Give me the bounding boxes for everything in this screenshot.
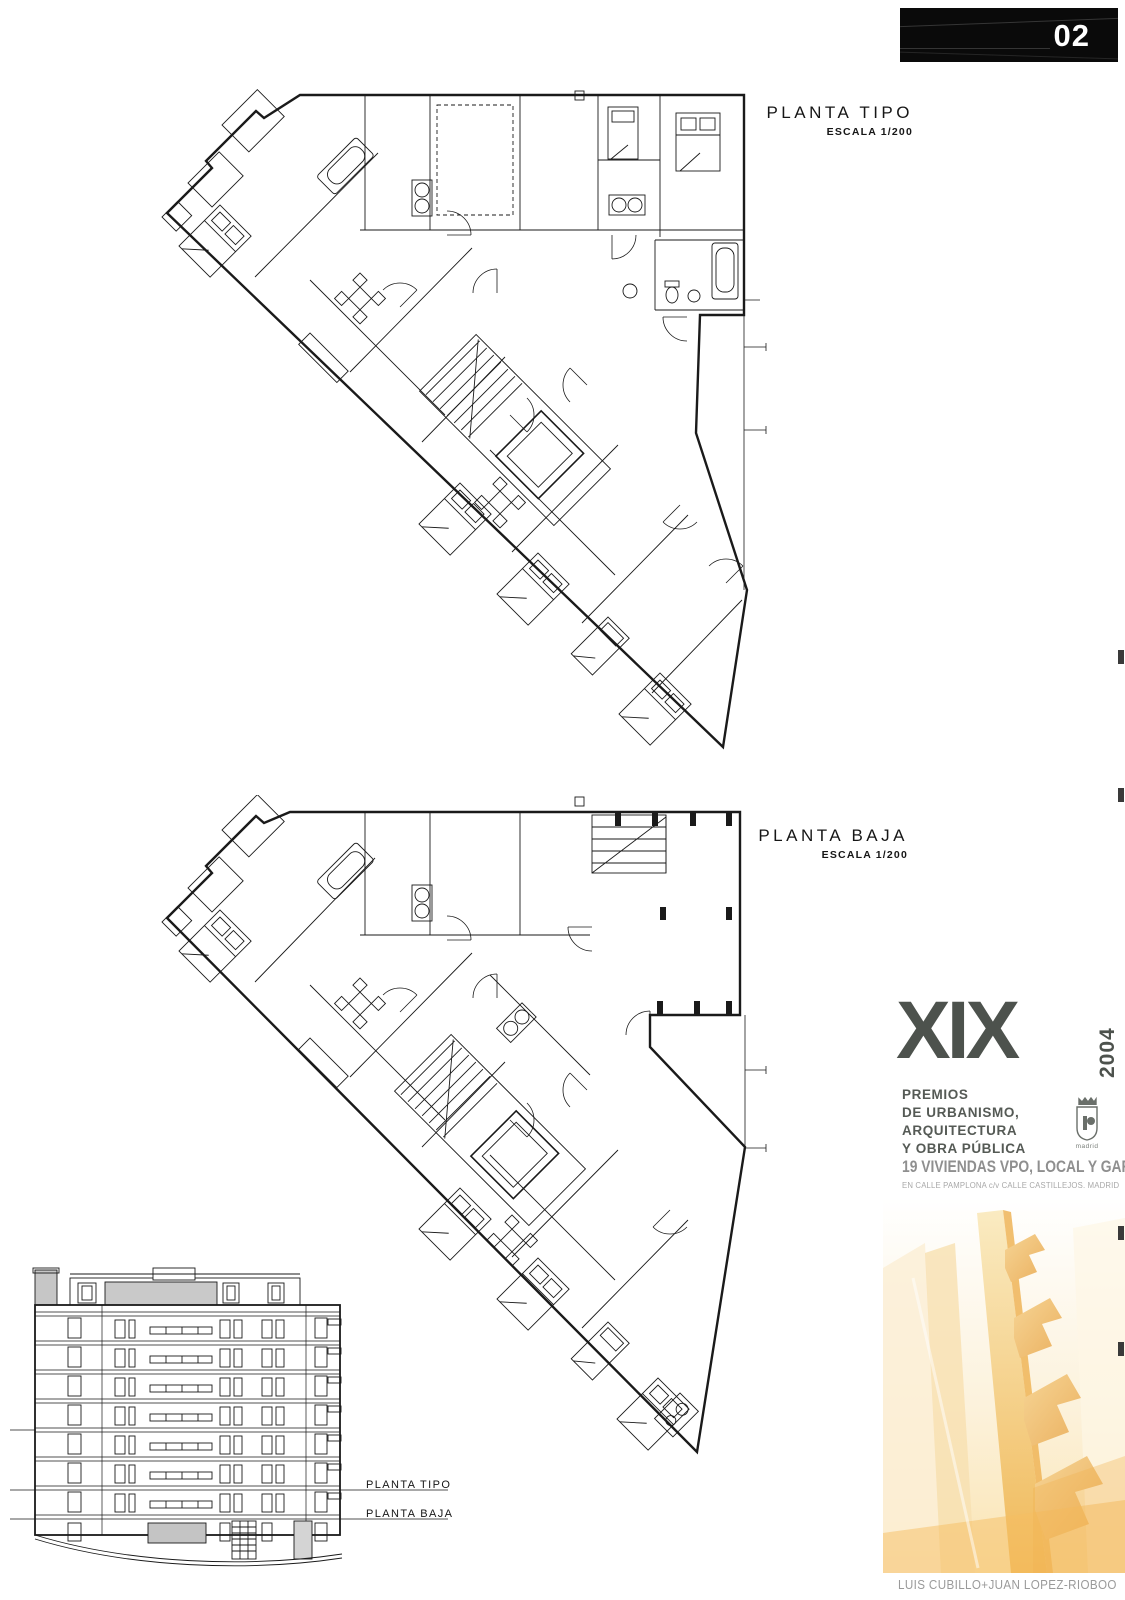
architects-credit: LUIS CUBILLO+JUAN LOPEZ-RIOBOO bbox=[898, 1578, 1108, 1592]
project-location: EN CALLE PAMPLONA c/v CALLE CASTILLEJOS.… bbox=[902, 1180, 1102, 1190]
elevation-roof bbox=[33, 1268, 300, 1305]
plan-doors bbox=[383, 916, 687, 1244]
elevation-ground bbox=[35, 1521, 342, 1566]
elevation-facade bbox=[35, 1305, 341, 1535]
planta-baja-title: PLANTA BAJA bbox=[748, 826, 908, 846]
planta-tipo-scale: ESCALA 1/200 bbox=[753, 126, 913, 138]
cover-artwork bbox=[883, 1198, 1125, 1573]
scan-mark bbox=[1118, 650, 1124, 664]
project-block: 19 VIVIENDAS VPO, LOCAL Y GARAJE EN CALL… bbox=[902, 1158, 1124, 1190]
plan-fixtures bbox=[316, 137, 738, 303]
planta-baja-scale: ESCALA 1/200 bbox=[748, 849, 908, 861]
plan-core bbox=[395, 1035, 586, 1226]
banner-streak bbox=[900, 48, 1050, 49]
elevation-label-planta-tipo: PLANTA TIPO bbox=[366, 1479, 451, 1491]
planta-tipo-title-block: PLANTA TIPO ESCALA 1/200 bbox=[753, 103, 913, 138]
sheet-number: 02 bbox=[1054, 18, 1090, 54]
madrid-caption: madrid bbox=[1072, 1143, 1102, 1150]
madrid-crest-icon bbox=[1072, 1096, 1102, 1142]
planta-tipo-title: PLANTA TIPO bbox=[753, 103, 913, 123]
award-year: 2004 bbox=[1096, 998, 1120, 1078]
plan-core bbox=[420, 335, 611, 526]
planta-tipo-drawing bbox=[160, 85, 770, 755]
elevation-label-planta-baja: PLANTA BAJA bbox=[366, 1508, 453, 1520]
madrid-emblem: madrid bbox=[1072, 1096, 1102, 1150]
project-title: 19 VIVIENDAS VPO, LOCAL Y GARAJE bbox=[902, 1158, 1088, 1177]
scan-mark bbox=[1118, 1342, 1124, 1356]
award-roman-numeral: XIX bbox=[896, 984, 1016, 1078]
planta-baja-title-block: PLANTA BAJA ESCALA 1/200 bbox=[748, 826, 908, 861]
scan-mark bbox=[1118, 788, 1124, 802]
plan-outline bbox=[162, 90, 766, 747]
elevation-drawing bbox=[10, 1230, 455, 1600]
plan-furniture bbox=[179, 107, 720, 745]
plan-walls bbox=[255, 95, 744, 693]
award-logo: XIX 2004 bbox=[902, 998, 1120, 1078]
award-block: XIX 2004 PREMIOS DE URBANISMO, ARQUITECT… bbox=[902, 998, 1120, 1158]
local-space bbox=[568, 813, 732, 1035]
elevation-leader-lines bbox=[10, 1430, 448, 1519]
sheet: 02 PLANTA TIPO ESCALA 1/200 PLANTA BAJA … bbox=[0, 0, 1125, 1600]
sheet-number-banner: 02 bbox=[900, 8, 1118, 62]
scan-mark bbox=[1118, 1226, 1124, 1240]
